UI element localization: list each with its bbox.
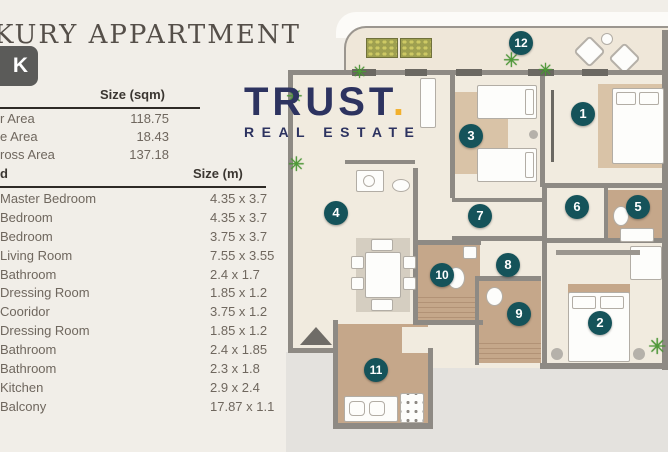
room-marker-11: 11 xyxy=(364,358,388,382)
wall xyxy=(413,168,418,325)
table-row: Bedroom4.35 x 3.7 xyxy=(0,210,270,229)
door-knob-icon xyxy=(529,130,538,139)
table-row: Dressing Room1.85 x 1.2 xyxy=(0,323,270,342)
table-row: Balcony17.87 x 1.1 xyxy=(0,399,270,418)
logo-tagline: REAL ESTATE xyxy=(244,124,444,140)
wall xyxy=(542,238,547,368)
room-label: Bathroom xyxy=(0,267,56,282)
room-label: Bedroom xyxy=(0,229,53,244)
chair-icon xyxy=(403,256,416,269)
dining-table-icon xyxy=(365,252,401,298)
wall xyxy=(345,160,415,164)
room-size: 2.4 x 1.7 xyxy=(210,267,260,282)
wall xyxy=(662,30,668,370)
pillow-icon xyxy=(639,92,659,105)
table-row: Kitchen2.9 x 2.4 xyxy=(0,380,270,399)
room-size: 4.35 x 3.7 xyxy=(210,191,267,206)
door-lintel xyxy=(456,69,482,76)
pillow-icon xyxy=(525,89,534,115)
table-row: Living Room7.55 x 3.55 xyxy=(0,248,270,267)
room-label: Kitchen xyxy=(0,380,43,395)
wall xyxy=(452,236,544,241)
rooms-table: Master Bedroom4.35 x 3.7 Bedroom4.35 x 3… xyxy=(0,191,270,418)
room-size: 3.75 x 1.2 xyxy=(210,304,267,319)
outside-area xyxy=(286,428,668,452)
area-value: 137.18 xyxy=(97,147,169,162)
stove-burner-icon xyxy=(400,393,424,423)
room-marker-6: 6 xyxy=(565,195,589,219)
room-marker-2: 2 xyxy=(588,311,612,335)
table-row: Cooridor3.75 x 1.2 xyxy=(0,304,270,323)
wall xyxy=(413,320,483,325)
room-marker-5: 5 xyxy=(626,195,650,219)
room-label: Master Bedroom xyxy=(0,191,96,206)
divider xyxy=(0,107,200,109)
wall xyxy=(450,72,455,198)
room-marker-9: 9 xyxy=(507,302,531,326)
wall xyxy=(540,72,545,187)
basin-bowl-icon xyxy=(363,175,375,187)
logo-wordmark: TRUST. xyxy=(244,82,444,122)
stool-icon xyxy=(633,348,645,360)
room-marker-4: 4 xyxy=(324,201,348,225)
room-label: Cooridor xyxy=(0,304,50,319)
wall xyxy=(288,348,338,353)
rooms-size-header: Size (m) xyxy=(193,166,243,181)
wall xyxy=(452,198,542,202)
room-label: Balcony xyxy=(0,399,46,414)
table-row: e Area 18.43 xyxy=(0,129,270,147)
table-row: ross Area 137.18 xyxy=(0,147,270,165)
room-label: Living Room xyxy=(0,248,72,263)
planter-box-icon xyxy=(366,38,398,58)
tv-console-icon xyxy=(556,250,640,255)
room-marker-8: 8 xyxy=(496,253,520,277)
table-row: Bathroom2.4 x 1.85 xyxy=(0,342,270,361)
door-lintel xyxy=(582,69,608,76)
table-row: r Area 118.75 xyxy=(0,111,270,129)
planter-box-icon xyxy=(400,38,432,58)
area-label: r Area xyxy=(0,111,35,126)
chair-icon xyxy=(403,277,416,290)
page-title: KURY APPARTMENT xyxy=(0,20,301,50)
table-row: Dressing Room1.85 x 1.2 xyxy=(0,285,270,304)
room-size: 1.85 x 1.2 xyxy=(210,285,267,300)
room-marker-10: 10 xyxy=(430,263,454,287)
area-value: 118.75 xyxy=(97,111,169,126)
pillow-icon xyxy=(600,296,624,309)
sink-cabinet-icon xyxy=(620,228,654,242)
sliding-door-line xyxy=(551,90,554,162)
plant-icon: ✳ xyxy=(648,334,666,360)
room-size: 2.3 x 1.8 xyxy=(210,361,260,376)
logo-gold-dot-icon: . xyxy=(393,80,408,124)
room-size: 3.75 x 3.7 xyxy=(210,229,267,244)
kitchen-corner xyxy=(402,327,428,353)
room-size: 2.4 x 1.85 xyxy=(210,342,267,357)
table-row: Bathroom2.3 x 1.8 xyxy=(0,361,270,380)
trust-logo: TRUST. REAL ESTATE xyxy=(244,82,444,140)
pillow-icon xyxy=(572,296,596,309)
room-marker-12: 12 xyxy=(509,31,533,55)
room-marker-7: 7 xyxy=(468,204,492,228)
stool-icon xyxy=(551,348,563,360)
wall xyxy=(604,188,608,240)
chair-icon xyxy=(371,239,393,251)
room-label: Dressing Room xyxy=(0,323,90,338)
bidet-icon xyxy=(392,179,410,192)
area-table: r Area 118.75 e Area 18.43 ross Area 137… xyxy=(0,111,270,165)
area-size-header: Size (sqm) xyxy=(95,87,170,102)
cabinet-icon xyxy=(463,246,477,259)
chair-icon xyxy=(371,299,393,311)
outside-area xyxy=(286,352,336,430)
table-row: Bathroom2.4 x 1.7 xyxy=(0,267,270,286)
logo-text: TRUST xyxy=(244,80,393,124)
wall xyxy=(542,186,547,241)
pillow-icon xyxy=(525,152,534,178)
room-size: 1.85 x 1.2 xyxy=(210,323,267,338)
shower-area xyxy=(479,341,541,363)
plant-icon: ✳ xyxy=(288,152,305,177)
balcony-table-icon xyxy=(601,33,613,45)
pillow-icon xyxy=(616,92,636,105)
toilet-icon xyxy=(486,287,503,306)
entrance-arrow-icon xyxy=(300,327,332,345)
door-lintel xyxy=(405,69,427,76)
room-size: 17.87 x 1.1 xyxy=(210,399,274,414)
room-label: Bathroom xyxy=(0,361,56,376)
area-label: e Area xyxy=(0,129,38,144)
plant-icon: ✳ xyxy=(538,60,553,81)
wall xyxy=(333,320,338,429)
wall xyxy=(333,423,433,429)
room-size: 2.9 x 2.4 xyxy=(210,380,260,395)
sink-bowl-icon xyxy=(349,401,365,416)
divider xyxy=(0,186,266,188)
room-marker-1: 1 xyxy=(571,102,595,126)
outside-area xyxy=(432,368,668,430)
unit-badge: K xyxy=(0,46,38,86)
wall xyxy=(475,276,479,365)
room-size: 7.55 x 3.55 xyxy=(210,248,274,263)
chair-icon xyxy=(351,256,364,269)
room-size: 4.35 x 3.7 xyxy=(210,210,267,225)
table-row: Bedroom3.75 x 3.7 xyxy=(0,229,270,248)
wall xyxy=(428,348,433,429)
wall xyxy=(540,363,668,369)
room-label: Bathroom xyxy=(0,342,56,357)
room-label: Bedroom xyxy=(0,210,53,225)
sink-bowl-icon xyxy=(369,401,385,416)
area-value: 18.43 xyxy=(97,129,169,144)
room-marker-3: 3 xyxy=(459,124,483,148)
table-row: Master Bedroom4.35 x 3.7 xyxy=(0,191,270,210)
room-label: Dressing Room xyxy=(0,285,90,300)
shower-area xyxy=(418,295,480,322)
chair-icon xyxy=(351,277,364,290)
area-label: ross Area xyxy=(0,147,55,162)
rooms-name-header: d xyxy=(0,166,8,181)
